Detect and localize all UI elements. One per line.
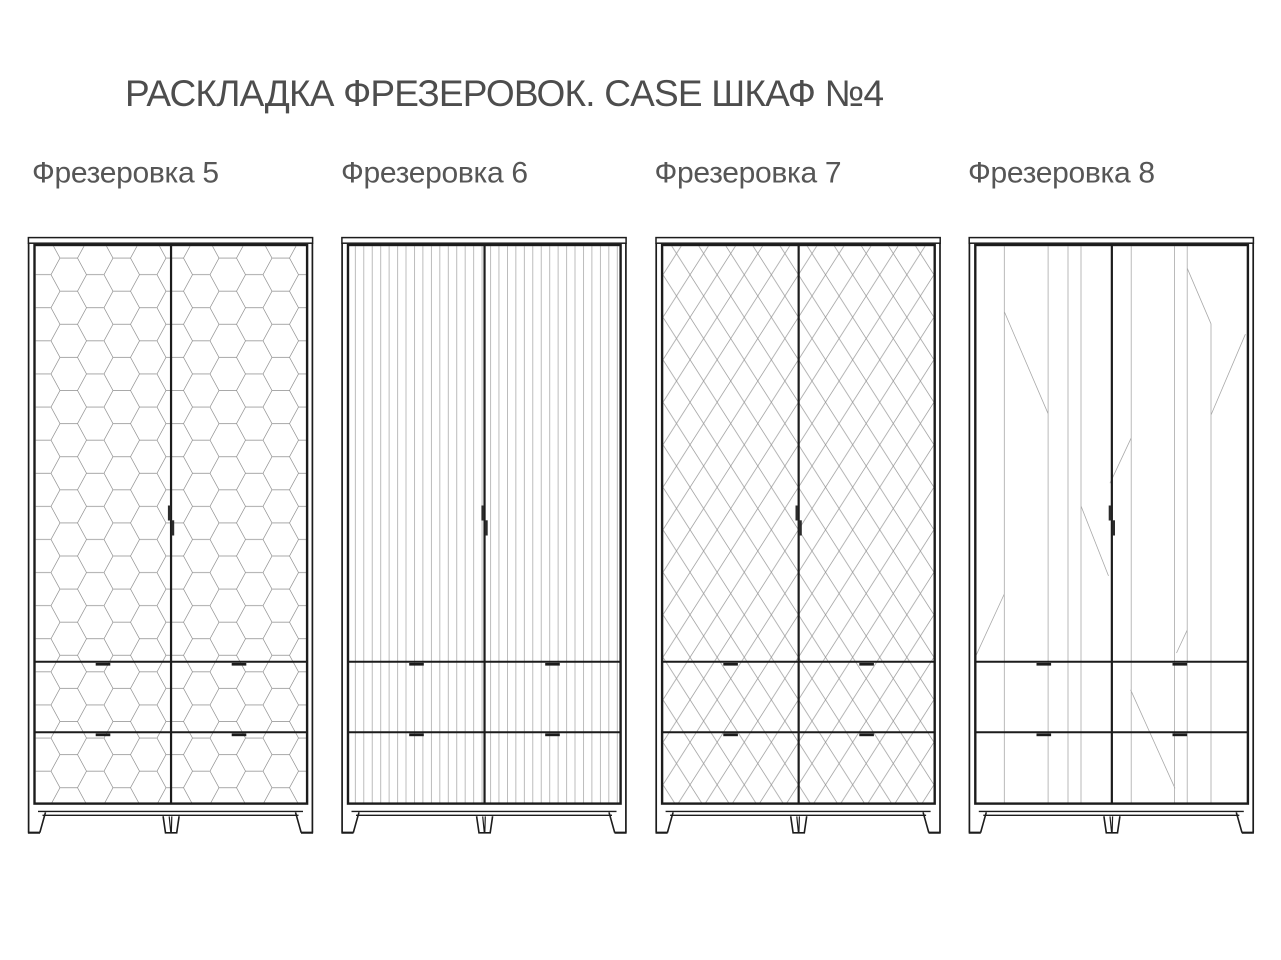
svg-text:Фрезеровка 7: Фрезеровка 7: [655, 157, 842, 190]
svg-text:Фрезеровка 8: Фрезеровка 8: [968, 157, 1155, 190]
svg-text:РАСКЛАДКА ФРЕЗЕРОВОК. CASE ШКА: РАСКЛАДКА ФРЕЗЕРОВОК. CASE ШКАФ №4: [125, 73, 883, 114]
svg-text:Фрезеровка 5: Фрезеровка 5: [32, 157, 219, 190]
svg-text:Фрезеровка 6: Фрезеровка 6: [341, 157, 528, 190]
